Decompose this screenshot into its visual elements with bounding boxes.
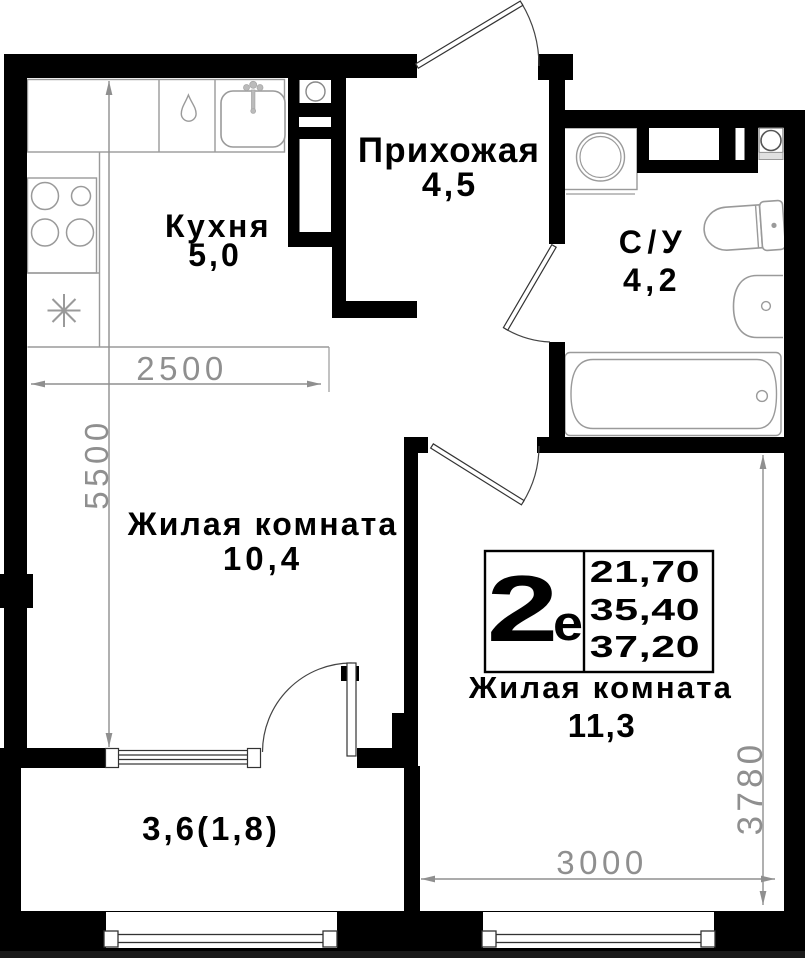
svg-text:21,70: 21,70 [590, 554, 700, 589]
svg-text:Прихожая: Прихожая [358, 131, 540, 170]
svg-text:3000: 3000 [556, 844, 647, 881]
svg-text:Жилая комната: Жилая комната [127, 506, 399, 542]
svg-text:2: 2 [487, 556, 559, 661]
svg-text:2500: 2500 [136, 350, 227, 387]
svg-text:4,2: 4,2 [623, 262, 681, 298]
svg-text:Жилая комната: Жилая комната [468, 670, 733, 705]
svg-text:е: е [553, 595, 583, 650]
svg-text:3780: 3780 [731, 741, 770, 836]
svg-text:4,5: 4,5 [422, 166, 478, 204]
svg-text:10,4: 10,4 [223, 540, 303, 577]
svg-text:С/У: С/У [619, 224, 687, 260]
svg-text:5,0: 5,0 [188, 237, 241, 273]
svg-text:11,3: 11,3 [568, 707, 636, 744]
svg-text:5500: 5500 [78, 418, 115, 509]
svg-text:35,40: 35,40 [590, 592, 700, 627]
svg-text:3,6(1,8): 3,6(1,8) [142, 810, 280, 847]
svg-text:37,20: 37,20 [590, 629, 700, 664]
